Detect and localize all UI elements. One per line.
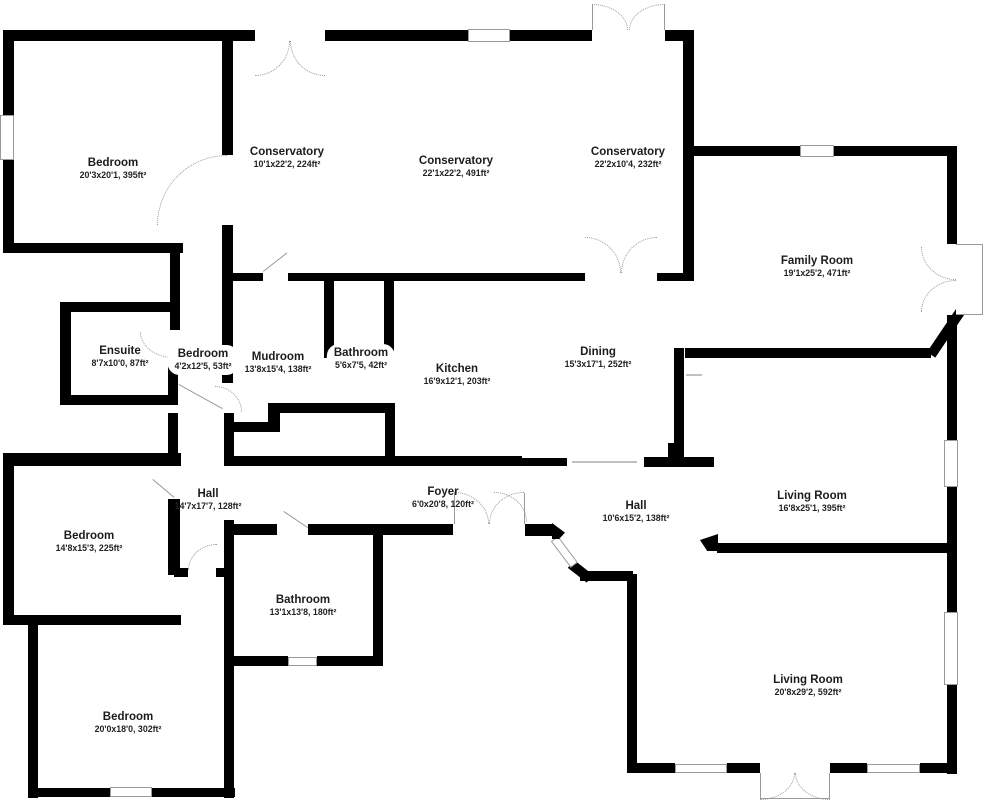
room-label: Family Room19'1x25'2, 471ft² [781,255,853,279]
wall-segment [222,30,233,155]
window [0,115,14,160]
room-name: Ensuite [92,345,149,358]
door-swing-arc [921,247,956,280]
wall-segment [920,763,952,773]
room-label: Foyer6'0x20'8, 120ft² [412,486,474,510]
room-dimensions: 14'8x15'3, 225ft² [56,543,123,554]
door-leaf [152,479,174,498]
door-swing-arc [921,280,956,312]
door-leaf [263,253,287,272]
room-name: Family Room [781,255,853,268]
door-leaf [664,4,665,30]
door-swing-arc [157,155,227,225]
room-name: Foyer [412,486,474,499]
wall-segment [229,30,255,41]
wall-segment [272,403,395,413]
door-leaf [592,4,593,30]
room-name: Mudroom [245,351,312,364]
room-label: Ensuite8'7x10'0, 87ft² [92,345,149,369]
window [675,764,727,773]
wall-diagonal [927,309,964,358]
room-label: Bedroom20'3x20'1, 395ft² [80,157,147,181]
room-dimensions: 10'1x22'2, 224ft² [250,159,324,170]
window [110,787,152,797]
wall-segment [3,30,14,115]
window-diagonal [551,536,578,568]
window [468,29,510,42]
room-label: Bedroom20'0x18'0, 302ft² [95,711,162,735]
wall-segment [727,763,760,773]
wall-segment [690,146,800,156]
window [944,612,958,685]
room-name: Living Room [773,674,843,687]
wall-segment [665,30,694,41]
room-name: Bathroom [270,594,337,607]
room-name: Conservatory [591,146,665,159]
door-leaf [283,511,308,528]
window [944,440,958,487]
room-dimensions: 16'8x25'1, 395ft² [777,503,847,514]
opening-line [686,374,702,376]
room-dimensions: 10'6x15'2, 138ft² [603,513,670,524]
room-name: Conservatory [419,155,493,168]
wall-segment [60,302,178,312]
room-dimensions: 22'2x10'4, 232ft² [591,159,665,170]
floor-plan: Bedroom20'3x20'1, 395ft²Conservatory10'1… [0,0,989,804]
wall-segment [3,160,14,253]
wall-segment [224,456,522,466]
wall-segment [60,302,71,405]
wall-segment [717,543,954,553]
room-name: Hall [603,500,670,513]
door-swing-arc [290,41,325,76]
wall-segment [3,243,183,253]
room-label: Living Room16'8x25'1, 395ft² [777,490,847,514]
room-dimensions: 22'1x22'2, 491ft² [419,168,493,179]
wall-segment [947,146,957,244]
wall-segment [224,422,280,432]
wall-segment [947,685,957,774]
wall-segment [644,457,714,467]
wall-segment [3,453,181,466]
room-name: Bedroom [80,157,147,170]
door-recess [956,244,983,315]
room-name: Hall [175,488,242,501]
room-label: Bedroom14'8x15'3, 225ft² [56,530,123,554]
room-label: Conservatory22'2x10'4, 232ft² [591,146,665,170]
wall-segment [224,524,277,535]
room-label: Conservatory10'1x22'2, 224ft² [250,146,324,170]
room-label: Mudroom13'8x15'4, 138ft² [245,351,312,375]
room-name: Conservatory [250,146,324,159]
room-name: Bedroom [175,348,232,361]
room-dimensions: 15'3x17'1, 252ft² [565,359,632,370]
window [288,657,317,666]
room-label: Conservatory22'1x22'2, 491ft² [419,155,493,179]
wall-segment [3,453,14,625]
room-dimensions: 8'7x10'0, 87ft² [92,358,149,369]
room-label: Bathroom13'1x13'8, 180ft² [270,594,337,618]
room-dimensions: 20'0x18'0, 302ft² [95,724,162,735]
room-dimensions: 19'1x25'2, 471ft² [781,268,853,279]
room-label: Bathroom5'6x7'5, 42ft² [329,346,393,372]
room-dimensions: 20'8x29'2, 592ft² [773,687,843,698]
room-name: Bathroom [334,347,388,360]
door-swing-arc [188,544,217,570]
wall-segment [522,458,567,466]
room-dimensions: 20'3x20'1, 395ft² [80,170,147,181]
room-label: Bedroom4'2x12'5, 53ft² [170,347,237,373]
wall-segment [525,524,552,536]
door-swing-arc [585,237,621,273]
room-dimensions: 13'1x13'8, 180ft² [270,607,337,618]
wall-segment [830,763,867,773]
wall-segment [685,348,931,358]
wall-segment [324,280,334,358]
door-leaf [524,493,525,524]
wall-segment [3,30,229,41]
wall-segment [325,30,468,41]
wall-segment [627,763,675,773]
wall-segment [60,395,178,405]
wall-segment [834,146,957,156]
room-label: Kitchen16'9x12'1, 203ft² [424,363,491,387]
room-dimensions: 5'6x7'5, 42ft² [334,360,388,371]
window [867,764,920,773]
door-swing-arc [592,4,628,30]
room-name: Dining [565,346,632,359]
room-label: Living Room20'8x29'2, 592ft² [773,674,843,698]
room-dimensions: 13'8x15'4, 138ft² [245,364,312,375]
wall-segment [385,403,395,460]
room-dimensions: 4'2x12'5, 53ft² [175,361,232,372]
room-label: Dining15'3x17'1, 252ft² [565,346,632,370]
wall-segment [28,788,110,797]
wall-segment [510,30,592,41]
room-label: Hall14'7x17'7, 128ft² [175,488,242,512]
wall-segment [224,656,288,666]
window [800,145,834,157]
door-swing-arc [629,4,665,30]
door-swing-arc [215,386,242,412]
wall-segment [233,273,263,281]
door-swing-arc [255,41,290,76]
room-name: Bedroom [95,711,162,724]
wall-segment [668,443,680,458]
wall-end-cap [700,534,718,551]
wall-segment [170,243,180,330]
room-dimensions: 16'9x12'1, 203ft² [424,376,491,387]
wall-segment [28,618,38,798]
opening-line [572,461,637,463]
room-name: Living Room [777,490,847,503]
wall-segment [152,788,235,797]
room-dimensions: 14'7x17'7, 128ft² [175,501,242,512]
wall-segment [373,524,383,665]
room-name: Bedroom [56,530,123,543]
room-name: Kitchen [424,363,491,376]
room-label: Hall10'6x15'2, 138ft² [603,500,670,524]
wall-segment [317,656,383,666]
door-swing-arc [621,237,657,273]
wall-segment [174,568,188,577]
room-dimensions: 6'0x20'8, 120ft² [412,499,474,510]
wall-segment [627,574,637,773]
wall-end-cap [552,523,565,539]
